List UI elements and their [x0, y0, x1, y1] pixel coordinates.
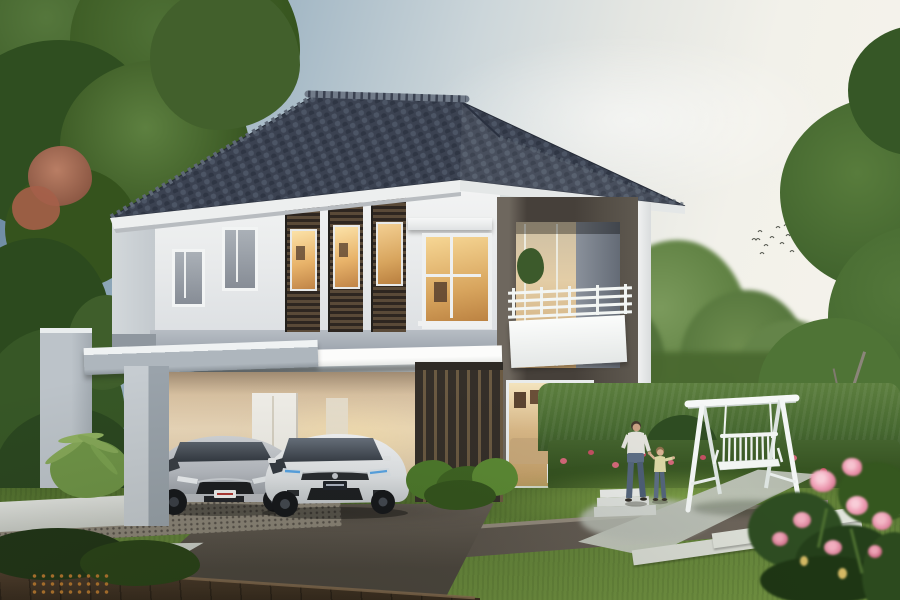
white-hatchback	[255, 418, 415, 520]
window-art	[434, 282, 447, 302]
flower-bud	[800, 556, 808, 566]
pink-flower	[842, 458, 862, 476]
pink-flower	[772, 532, 788, 546]
carport-column	[124, 366, 169, 526]
bedroom-window	[172, 249, 205, 307]
pink-flower	[868, 545, 882, 558]
balcony-parapet	[509, 315, 627, 368]
window-mullion	[184, 252, 186, 298]
shrub-flowers	[30, 572, 110, 594]
child	[650, 447, 675, 501]
people-walking	[612, 414, 676, 510]
pink-flower	[846, 496, 868, 515]
base-shrub	[424, 480, 496, 510]
bed-flower	[588, 450, 594, 455]
lit-window-large	[422, 233, 492, 329]
bed-flower	[560, 458, 567, 464]
window-mullion	[425, 274, 481, 277]
flower-bud	[838, 568, 847, 579]
window-sill	[418, 321, 490, 326]
window-art	[296, 246, 305, 260]
balcony-plant	[517, 248, 544, 284]
house-exterior-photo	[0, 0, 900, 600]
interior-picture-frame	[514, 392, 526, 408]
window-mullion	[450, 236, 453, 318]
window-art	[339, 243, 348, 257]
pink-flower	[872, 512, 892, 530]
house-side-wall	[112, 221, 158, 348]
lit-window	[290, 229, 317, 291]
pink-flower	[824, 540, 842, 555]
left-tree-blossom	[12, 186, 60, 230]
balcony-lintel-shadow	[516, 222, 620, 234]
man	[623, 421, 651, 502]
pink-flower	[810, 470, 836, 492]
foreground-flower-bush	[735, 448, 900, 600]
pink-flower	[793, 512, 811, 528]
